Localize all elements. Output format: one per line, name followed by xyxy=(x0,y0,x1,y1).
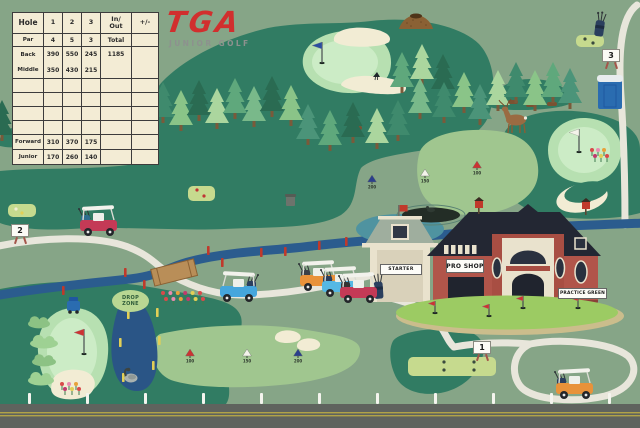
hazard-stake-icon xyxy=(345,237,348,246)
tee-box xyxy=(576,35,604,47)
scorecard-cell xyxy=(63,93,82,107)
scorecard-cell xyxy=(101,93,132,107)
scorecard-row: Par453Total xyxy=(13,34,159,47)
oval-window xyxy=(556,258,565,278)
scorecard-cell: 430 xyxy=(63,63,82,79)
scorecard-cell: 140 xyxy=(82,150,101,165)
sign-legs xyxy=(11,237,29,244)
scorecard-row: Back3905502451185 xyxy=(13,47,159,63)
scorecard-cell: Back xyxy=(13,47,44,63)
hole-2-sign: 2 xyxy=(11,224,29,244)
scorecard-cell xyxy=(101,150,132,165)
hazard-stake-icon xyxy=(207,246,210,255)
scorecard-cell xyxy=(44,121,63,135)
oval-window xyxy=(493,258,502,278)
scorecard-cell xyxy=(132,150,159,165)
roof-flag xyxy=(400,205,408,212)
sign-legs xyxy=(602,62,620,69)
road-post xyxy=(376,393,379,404)
pro-shop-sign: PRO SHOP xyxy=(446,259,484,273)
flower-icon xyxy=(183,291,187,295)
scorecard-cell: 370 xyxy=(63,135,82,150)
flower-icon xyxy=(164,297,168,301)
scorecard-cell: 5 xyxy=(63,34,82,47)
flower-icon xyxy=(201,297,205,301)
scorecard-cell xyxy=(101,135,132,150)
tee-box xyxy=(188,186,215,201)
flower-icon xyxy=(176,291,180,295)
flower-icon xyxy=(593,154,597,158)
dormer-window xyxy=(392,225,408,239)
porta-potty-icon xyxy=(597,75,623,109)
flower-icon xyxy=(599,154,603,158)
scorecard-cell xyxy=(132,107,159,121)
scorecard-row: Forward310370175 xyxy=(13,135,159,150)
drop-zone-line2: ZONE xyxy=(122,301,139,307)
square-window xyxy=(575,238,586,249)
scorecard-cell xyxy=(63,107,82,121)
flower-icon xyxy=(596,148,600,152)
flower-icon xyxy=(602,148,606,152)
scorecard-cell xyxy=(101,121,132,135)
trash-bin-icon xyxy=(285,194,296,206)
oval-window xyxy=(575,261,587,283)
flower-icon xyxy=(63,387,67,391)
scorecard-cell xyxy=(101,79,132,93)
scorecard-cell: 4 xyxy=(44,34,63,47)
clerestory-window xyxy=(465,245,470,254)
clerestory-window xyxy=(451,245,456,254)
clerestory-window xyxy=(472,245,477,254)
scorecard-row: Middle350430215 xyxy=(13,63,159,79)
scorecard-cell: Forward xyxy=(13,135,44,150)
scorecard-cell: Total xyxy=(101,34,132,47)
hole-1-sign: 1 xyxy=(473,341,491,361)
scorecard-cell xyxy=(132,93,159,107)
svg-text:100: 100 xyxy=(473,171,482,176)
scorecard-cell: 215 xyxy=(82,63,101,79)
scorecard-row: Junior170260140 xyxy=(13,150,159,165)
flower-icon xyxy=(590,148,594,152)
hazard-stake-icon xyxy=(221,258,224,267)
road-post xyxy=(144,393,147,404)
golf-course-map: 200150100100150200 Hole123In/Out+/-Par45… xyxy=(0,0,640,428)
hazard-stake-icon xyxy=(156,308,159,317)
scorecard-cell: Junior xyxy=(13,150,44,165)
hazard-stake-icon xyxy=(284,247,287,256)
flower-icon xyxy=(77,387,81,391)
scorecard-header-cell: 3 xyxy=(82,13,101,34)
scorecard-cell xyxy=(63,79,82,93)
scorecard-cell: 260 xyxy=(63,150,82,165)
drop-zone-sign: DROP ZONE xyxy=(112,290,149,312)
road-post xyxy=(28,393,31,404)
flower-icon xyxy=(60,382,64,386)
scorecard-header-cell: 1 xyxy=(44,13,63,34)
clerestory-window xyxy=(444,245,449,254)
hole-sign-number: 3 xyxy=(602,49,620,62)
flower-icon xyxy=(198,291,202,295)
scorecard-cell xyxy=(13,93,44,107)
svg-text:150: 150 xyxy=(243,359,252,364)
scorecard-row xyxy=(13,93,159,107)
scorecard-header-cell: Hole xyxy=(13,13,44,34)
hazard-stake-icon xyxy=(152,361,155,370)
scorecard-cell xyxy=(13,107,44,121)
scorecard-cell xyxy=(132,47,159,63)
scorecard-header-row: Hole123In/Out+/- xyxy=(13,13,159,34)
road-line xyxy=(0,412,640,413)
svg-text:100: 100 xyxy=(186,359,195,364)
road-post xyxy=(608,393,611,404)
road-post xyxy=(202,393,205,404)
roof-trim xyxy=(362,243,438,248)
scorecard-cell xyxy=(63,121,82,135)
road-post xyxy=(434,393,437,404)
scorecard-cell: 245 xyxy=(82,47,101,63)
flower-icon xyxy=(186,297,190,301)
scorecard-cell: 1185 xyxy=(101,47,132,63)
flower-icon xyxy=(179,297,183,301)
scorecard-cell xyxy=(101,107,132,121)
scorecard-cell xyxy=(44,93,63,107)
hazard-stake-icon xyxy=(62,286,65,295)
scorecard-cell xyxy=(132,135,159,150)
road-post xyxy=(492,393,495,404)
cart-path xyxy=(454,343,530,347)
hole-sign-number: 1 xyxy=(473,341,491,354)
brick-band xyxy=(506,266,550,271)
clerestory-window xyxy=(458,245,463,254)
flower-icon xyxy=(70,387,74,391)
tga-logo: TGA JUNIOR GOLF xyxy=(166,8,251,48)
flower-icon xyxy=(67,382,71,386)
roof-trim xyxy=(378,216,422,220)
hazard-stake-icon xyxy=(143,280,146,289)
hazard-stake-icon xyxy=(318,241,321,250)
scorecard-row xyxy=(13,107,159,121)
flower-icon xyxy=(194,297,198,301)
scorecard-cell: 170 xyxy=(44,150,63,165)
logo-subtitle: JUNIOR GOLF xyxy=(169,40,251,48)
road-post xyxy=(260,393,263,404)
scorecard-row xyxy=(13,121,159,135)
hazard-stake-icon xyxy=(124,268,127,277)
scorecard-header-cell: 2 xyxy=(63,13,82,34)
practice-green-sign: PRACTICE GREEN xyxy=(558,288,607,299)
sign-legs xyxy=(473,354,491,361)
scorecard-cell xyxy=(13,121,44,135)
svg-text:200: 200 xyxy=(368,185,377,190)
scorecard-cell: 310 xyxy=(44,135,63,150)
hazard-stake-icon xyxy=(119,338,122,347)
scorecard-cell xyxy=(82,93,101,107)
scorecard-cell: 550 xyxy=(63,47,82,63)
hazard-stake-icon xyxy=(158,336,161,345)
scorecard-cell xyxy=(132,63,159,79)
scorecard-cell: Middle xyxy=(13,63,44,79)
scorecard-cell: 3 xyxy=(82,34,101,47)
scorecard-cell: 350 xyxy=(44,63,63,79)
scorecard-cell xyxy=(44,107,63,121)
scorecard-cell xyxy=(13,79,44,93)
scorecard-cell xyxy=(132,79,159,93)
scorecard-cell xyxy=(44,79,63,93)
flower-icon xyxy=(605,154,609,158)
hole-sign-number: 2 xyxy=(11,224,29,237)
road-post xyxy=(550,393,553,404)
logo-title: TGA xyxy=(164,8,253,37)
svg-text:200: 200 xyxy=(294,359,303,364)
scorecard-cell xyxy=(132,121,159,135)
starter-hut-opening xyxy=(377,250,423,302)
road-post xyxy=(86,393,89,404)
flower-icon xyxy=(168,291,172,295)
scorecard-row xyxy=(13,79,159,93)
scorecard-header-cell: In/Out xyxy=(101,13,132,34)
scorecard-cell: Par xyxy=(13,34,44,47)
scorecard-cell xyxy=(132,34,159,47)
flower-icon xyxy=(191,291,195,295)
svg-text:150: 150 xyxy=(421,179,430,184)
scorecard-table: Hole123In/Out+/-Par453TotalBack390550245… xyxy=(12,12,159,165)
scorecard-cell xyxy=(82,121,101,135)
tee-box xyxy=(8,204,36,217)
flower-icon xyxy=(161,291,165,295)
flower-icon xyxy=(171,297,175,301)
scorecard-header-cell: +/- xyxy=(132,13,159,34)
hazard-stake-icon xyxy=(122,373,125,382)
scorecard-cell xyxy=(101,63,132,79)
road-post xyxy=(318,393,321,404)
road-line xyxy=(0,415,640,416)
hazard-stake-icon xyxy=(260,248,263,257)
scorecard-cell: 175 xyxy=(82,135,101,150)
scorecard-cell xyxy=(82,79,101,93)
practice-green xyxy=(396,296,618,330)
scorecard-cell: 390 xyxy=(44,47,63,63)
starter-sign: STARTER xyxy=(380,264,422,275)
flower-icon xyxy=(74,382,78,386)
scorecard-cell xyxy=(82,107,101,121)
hole-3-sign: 3 xyxy=(602,49,620,69)
